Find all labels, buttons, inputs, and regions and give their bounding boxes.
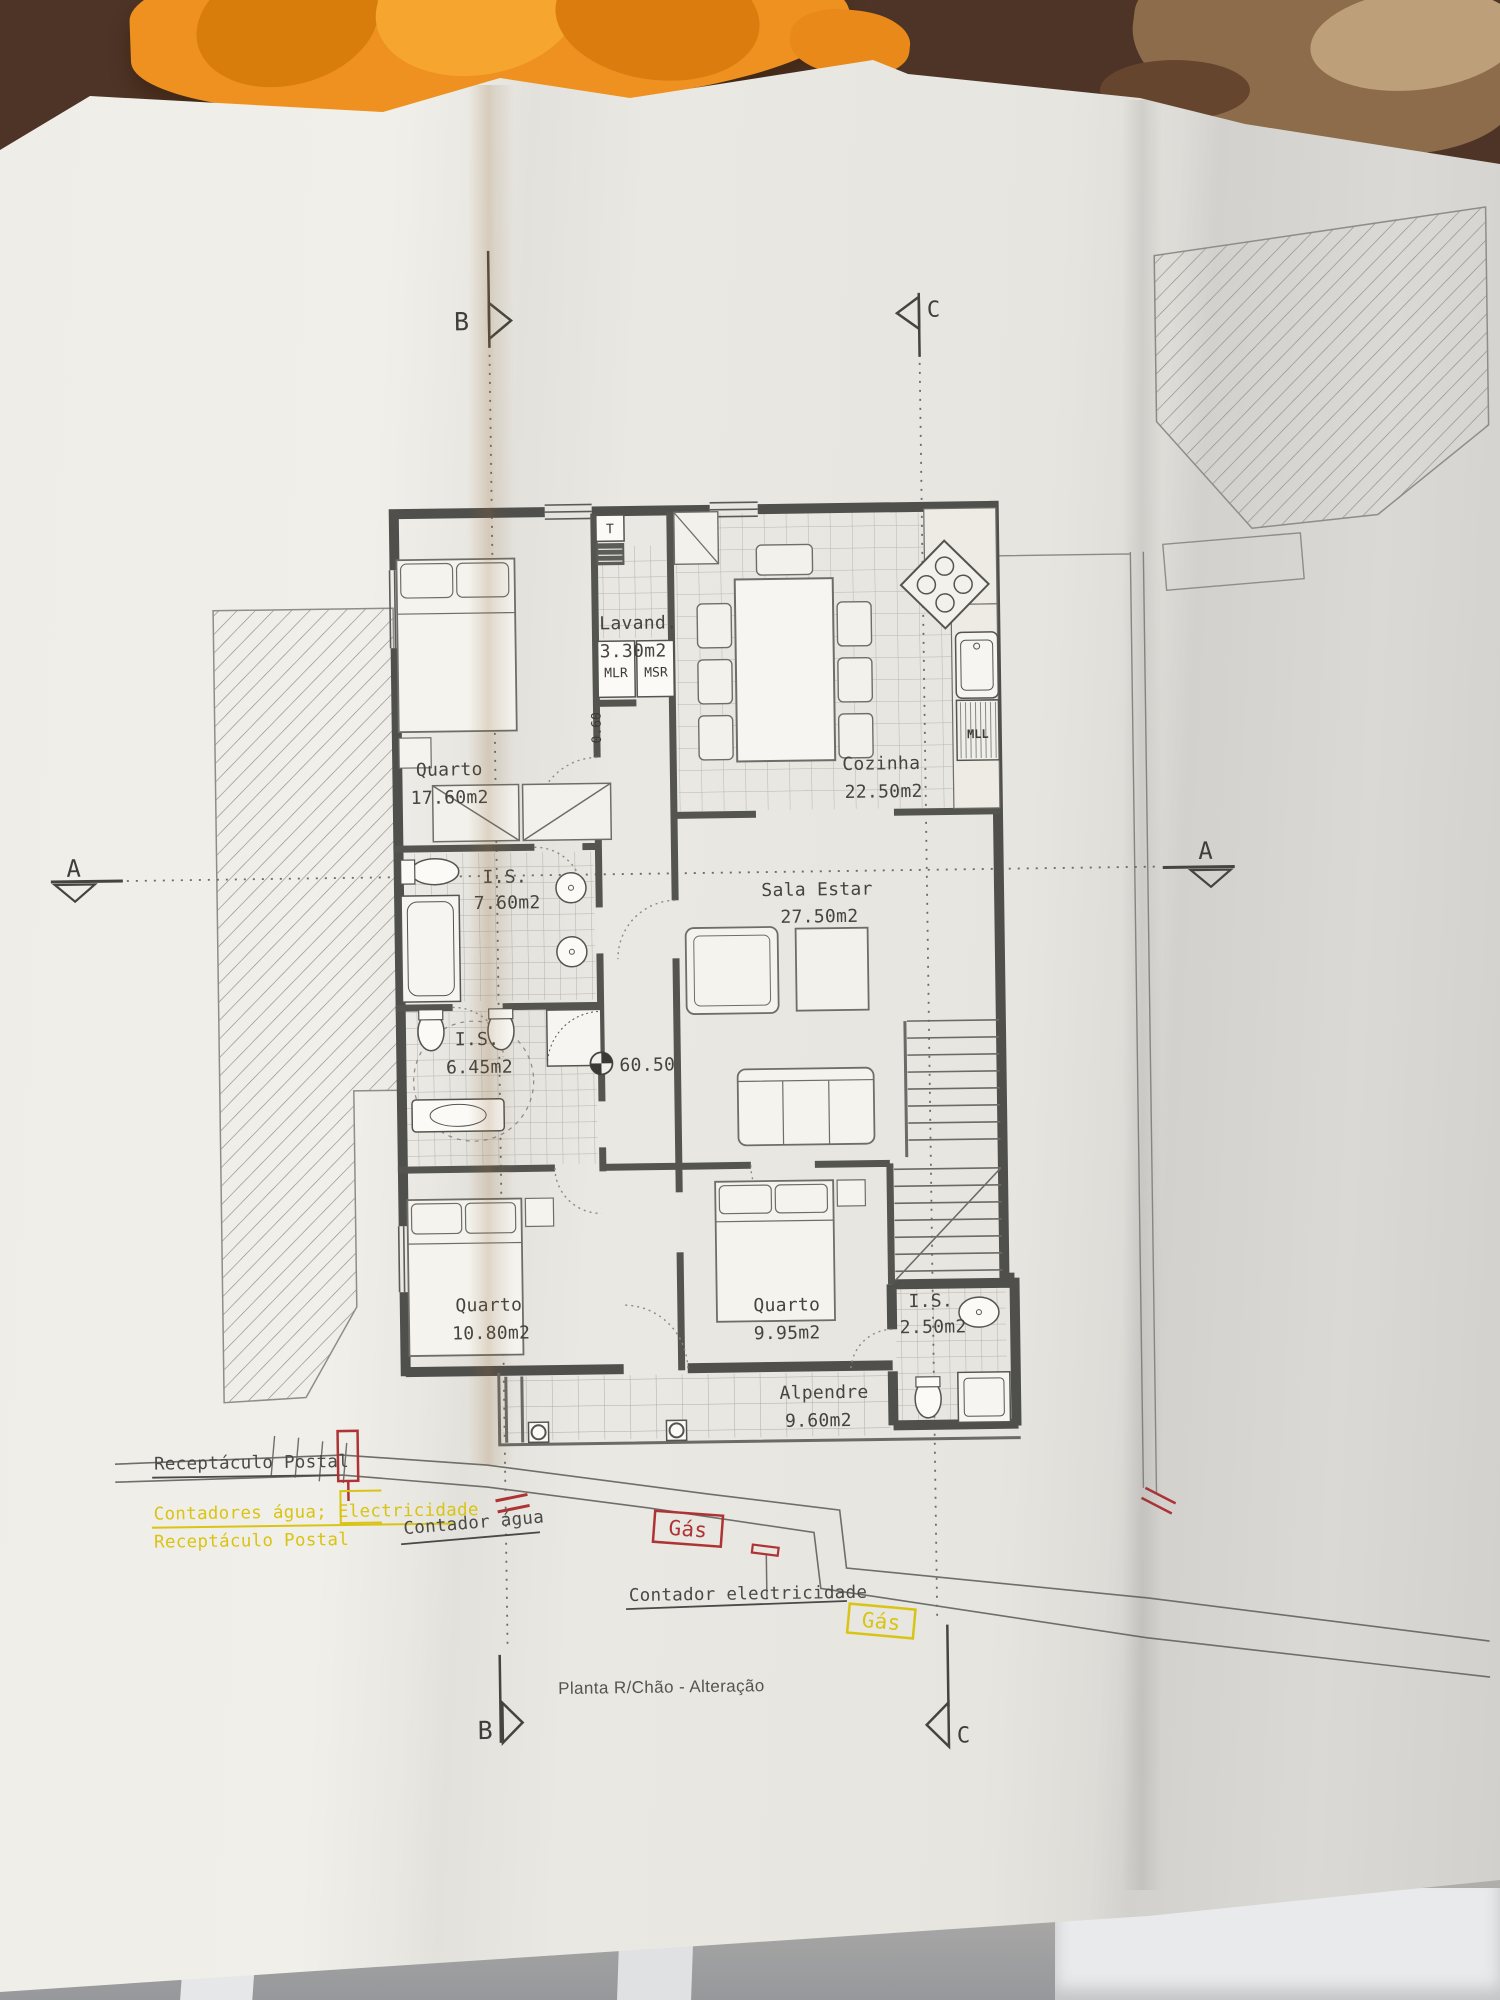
room-area-quarto1: 17.60m2 (411, 787, 489, 809)
room-label-sala: Sala Estar (761, 879, 873, 902)
coffee-table (796, 928, 869, 1011)
room-area-quarto3: 9.95m2 (754, 1322, 821, 1344)
section-marker-b-bottom: B (477, 1655, 523, 1746)
gas-box-red: Gás (653, 1511, 723, 1547)
drawing-title: Planta R/Chão - Alteração (558, 1676, 765, 1698)
dishwasher: MLL (956, 700, 999, 761)
bed (396, 559, 517, 769)
section-letter-c: C (957, 1723, 971, 1748)
floor-level-value: 60.50 (619, 1054, 675, 1076)
section-letter-c: C (927, 298, 941, 323)
step-level-marker: 0.60 (590, 712, 605, 744)
room-label-is2: I.S. (455, 1029, 500, 1051)
section-marker-b-top: B (453, 251, 511, 349)
postal-label-gray: Receptáculo Postal (154, 1452, 349, 1475)
section-marker-c-top: C (897, 293, 941, 358)
toilet (401, 858, 459, 885)
section-marker-c-bottom: C (925, 1624, 970, 1749)
photo-scene: T MLR MSR (0, 0, 1500, 2000)
section-marker-a-left: A (50, 854, 123, 902)
room-label-is1: I.S. (482, 866, 527, 888)
washbasin (412, 1099, 504, 1132)
section-letter-a: A (1198, 837, 1213, 865)
room-label-quarto3: Quarto (753, 1294, 820, 1316)
room-area-alpendre: 9.60m2 (785, 1410, 852, 1432)
hatched-neighbour-top-right (1154, 207, 1491, 590)
room-area-sala: 27.50m2 (780, 906, 858, 928)
step-level-value: 0.60 (590, 712, 605, 744)
room-label-cozinha: Cozinha (842, 753, 920, 775)
room-label-quarto1: Quarto (416, 759, 483, 781)
level-marker: 60.50 (590, 1051, 675, 1076)
washer-label: MLR (604, 666, 628, 681)
section-marker-a-right: A (1162, 837, 1235, 888)
section-letter-b: B (454, 307, 469, 336)
postal-label-yellow: Receptáculo Postal (154, 1530, 349, 1553)
section-letter-a: A (66, 855, 81, 883)
room-label-alpendre: Alpendre (779, 1382, 868, 1404)
section-letter-b: B (477, 1716, 492, 1745)
room-label-quarto2: Quarto (455, 1295, 522, 1317)
water-heater: T (596, 515, 625, 565)
hatched-neighbour-left (213, 608, 404, 1402)
electricity-meter-annotation: Contador electricidade (624, 1487, 1177, 1609)
room-area-lavandaria: 3.30m2 (600, 640, 667, 662)
toilet (915, 1377, 942, 1418)
gas-label-red: Gás (668, 1516, 708, 1543)
electricity-meter-label: Contador electricidade (629, 1583, 868, 1606)
right-boundary-fence (998, 552, 1156, 1496)
stairs (892, 1020, 1003, 1280)
room-area-is1: 7.60m2 (474, 892, 541, 914)
room-area-quarto2: 10.80m2 (452, 1322, 530, 1344)
shower (958, 1372, 1011, 1423)
gas-label-yellow: Gás (861, 1608, 902, 1635)
room-area-is2: 6.45m2 (446, 1057, 513, 1079)
dishwasher-label: MLL (967, 727, 989, 741)
room-label-lavandaria: Lavand. (599, 612, 677, 634)
kitchen-sink (955, 632, 998, 699)
room-area-cozinha: 22.50m2 (845, 781, 923, 803)
room-label-is3: I.S. (908, 1291, 953, 1313)
water-heater-label: T (606, 522, 614, 537)
floor-plan-drawing: T MLR MSR (0, 0, 1500, 2000)
gas-box-yellow: Gás (847, 1604, 915, 1639)
room-area-is3: 2.50m2 (900, 1316, 967, 1338)
bathtub (401, 895, 460, 1002)
dryer-label: MSR (644, 665, 668, 680)
